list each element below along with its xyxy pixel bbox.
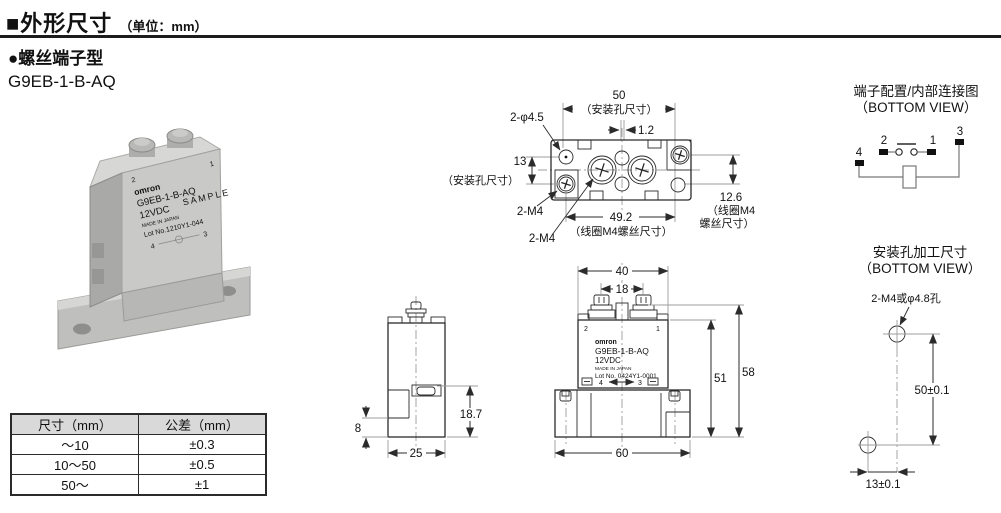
terminal-4-label: 4 bbox=[856, 147, 863, 159]
model-number: G9EB-1-B-AQ bbox=[8, 72, 116, 92]
dim-60: 60 bbox=[616, 448, 629, 460]
dim-40: 40 bbox=[616, 266, 629, 278]
dim-50-note: （安装孔尺寸） bbox=[581, 102, 658, 116]
coil-symbol bbox=[903, 166, 916, 188]
terminal-2-pin bbox=[879, 149, 888, 155]
section-label: ●螺丝端子型 bbox=[8, 44, 103, 69]
terminal-2-label: 2 bbox=[881, 135, 887, 147]
tolerance-table-header-row: 尺寸（mm） 公差（mm） bbox=[11, 414, 266, 435]
product-photo: 2 1 omron G9EB-1-B-AQ 12VDC SAMPLE MADE … bbox=[38, 105, 258, 377]
dim-51: 51 bbox=[714, 373, 727, 385]
tolerance-col-dimension: 尺寸（mm） bbox=[11, 414, 139, 435]
terminal-3-label: 3 bbox=[957, 126, 963, 138]
front-voltage: 12VDC bbox=[595, 356, 621, 365]
title-rule bbox=[0, 35, 1001, 38]
internal-circuit: 2 1 4 3 bbox=[855, 126, 964, 188]
terminal-diagram-title: 端子配置/内部连接图 bbox=[853, 83, 978, 99]
front-model: G9EB-1-B-AQ bbox=[595, 346, 649, 356]
dim-8: 8 bbox=[355, 423, 361, 435]
terminal-4-pin bbox=[855, 160, 864, 166]
front-terminal-3: 3 bbox=[638, 380, 642, 387]
coil-screw-bottom-left bbox=[557, 175, 575, 193]
terminal-3-pin bbox=[955, 139, 964, 145]
tolerance-col-tolerance: 公差（mm） bbox=[139, 414, 267, 435]
terminal-diagram: 端子配置/内部连接图 （BOTTOM VIEW） 2 1 4 3 bbox=[815, 82, 1001, 220]
mounting-hole-drawing: 安装孔加工尺寸 （BOTTOM VIEW） 2-M4或φ4.8孔 50±0.1 … bbox=[820, 240, 1001, 513]
side-view-drawing: 18.7 8 25 bbox=[352, 268, 492, 488]
top-view-drawing: 50 （安装孔尺寸） 1.2 2-φ4.5 13 （安装孔尺寸） 2-M4 2-… bbox=[440, 88, 805, 253]
page-title: ■外形尺寸 （单位：mm） bbox=[6, 6, 208, 38]
front-label: 2 1 omron G9EB-1-B-AQ 12VDC MADE IN JAPA… bbox=[582, 326, 660, 387]
page-title-text: ■外形尺寸 bbox=[6, 11, 112, 36]
dim-18-7: 18.7 bbox=[460, 409, 482, 421]
tolerance-value: ±0.5 bbox=[139, 455, 267, 475]
dim-12-6-note2: 螺丝尺寸） bbox=[700, 216, 755, 230]
mounting-subtitle: （BOTTOM VIEW） bbox=[859, 261, 982, 276]
dim-18: 18 bbox=[616, 284, 629, 296]
front-view-outline bbox=[555, 295, 690, 437]
side-view-outline bbox=[388, 302, 445, 437]
dim-1-2: 1.2 bbox=[638, 125, 654, 137]
dim-12-6-note1: （线圈M4 bbox=[707, 203, 755, 217]
dim-49-2: 49.2 bbox=[610, 212, 632, 224]
dim-13: 13 bbox=[514, 156, 527, 168]
terminal-diagram-subtitle: （BOTTOM VIEW） bbox=[855, 100, 978, 115]
dim-49-2-note: （线圈M4螺丝尺寸） bbox=[569, 224, 672, 238]
dim-50: 50 bbox=[613, 90, 626, 102]
dim-13-note: （安装孔尺寸） bbox=[442, 173, 519, 187]
mounting-hole-label: 2-M4或φ4.8孔 bbox=[871, 292, 941, 305]
front-made-in: MADE IN JAPAN bbox=[595, 366, 632, 372]
front-terminal-2: 2 bbox=[584, 326, 588, 333]
front-terminal-1: 1 bbox=[656, 326, 660, 333]
front-terminal-4: 4 bbox=[599, 380, 603, 387]
label-2-phi45: 2-φ4.5 bbox=[510, 112, 544, 124]
dim-58: 58 bbox=[742, 367, 755, 379]
terminal-1-label: 1 bbox=[930, 135, 936, 147]
label-2-m4-corner: 2-M4 bbox=[517, 206, 544, 218]
side-hook-lower bbox=[92, 269, 104, 284]
label-2-m4-center: 2-M4 bbox=[529, 233, 556, 245]
table-row: ～10 ±0.3 bbox=[11, 435, 266, 455]
dim-50-tol: 50±0.1 bbox=[914, 385, 949, 397]
page-title-unit: （单位：mm） bbox=[119, 19, 207, 34]
front-view-drawing: 2 1 omron G9EB-1-B-AQ 12VDC MADE IN JAPA… bbox=[548, 258, 763, 480]
table-row: 50～ ±1 bbox=[11, 475, 266, 496]
terminal-1-pin bbox=[927, 149, 936, 155]
dim-25: 25 bbox=[410, 448, 423, 460]
mounting-hole-left bbox=[73, 324, 91, 335]
tolerance-table: 尺寸（mm） 公差（mm） ～10 ±0.3 10～50 ±0.5 50～ ±1 bbox=[10, 413, 267, 496]
mounting-title: 安装孔加工尺寸 bbox=[873, 245, 968, 260]
front-brand: omron bbox=[595, 339, 617, 346]
tolerance-value: ±1 bbox=[139, 475, 267, 496]
table-row: 10～50 ±0.5 bbox=[11, 455, 266, 475]
coil-screw-top-right bbox=[671, 146, 689, 164]
dimension-range: 10～50 bbox=[11, 455, 139, 475]
relay-bottom-outline bbox=[551, 140, 691, 200]
tolerance-value: ±0.3 bbox=[139, 435, 267, 455]
dimension-range: 50～ bbox=[11, 475, 139, 496]
dimension-range: ～10 bbox=[11, 435, 139, 455]
datasheet-page: ■外形尺寸 （单位：mm） ●螺丝端子型 G9EB-1-B-AQ bbox=[0, 0, 1001, 513]
dim-12-6: 12.6 bbox=[720, 192, 742, 204]
dim-13-tol: 13±0.1 bbox=[865, 479, 900, 491]
mounting-hole-top bbox=[883, 320, 911, 348]
side-hook-upper bbox=[92, 243, 104, 258]
contact-screw-right bbox=[628, 156, 656, 184]
